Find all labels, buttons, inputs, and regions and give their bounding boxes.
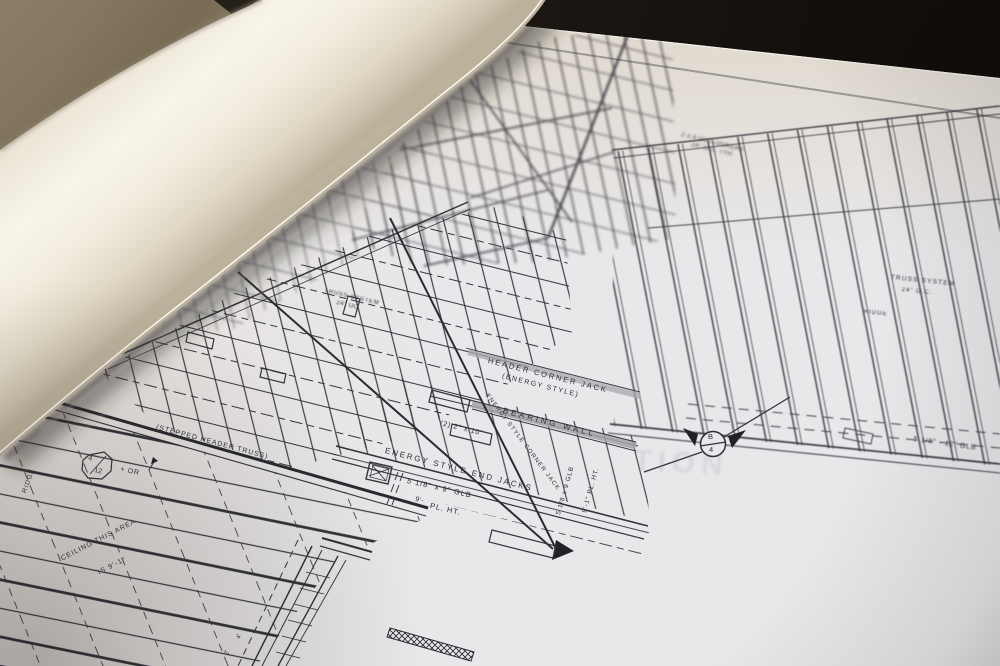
label-section-marker-letter: B	[708, 433, 713, 441]
label-section-marker-number: 4	[709, 446, 713, 454]
blueprint-line-art	[0, 0, 1000, 666]
label-watermark: TION	[632, 446, 729, 481]
label-pitch-denominator: 12	[94, 467, 103, 475]
blueprint-photo: TION 2 x 4 OUTLOOKERS 24" O.C. TYP. TRUS…	[0, 0, 1000, 666]
